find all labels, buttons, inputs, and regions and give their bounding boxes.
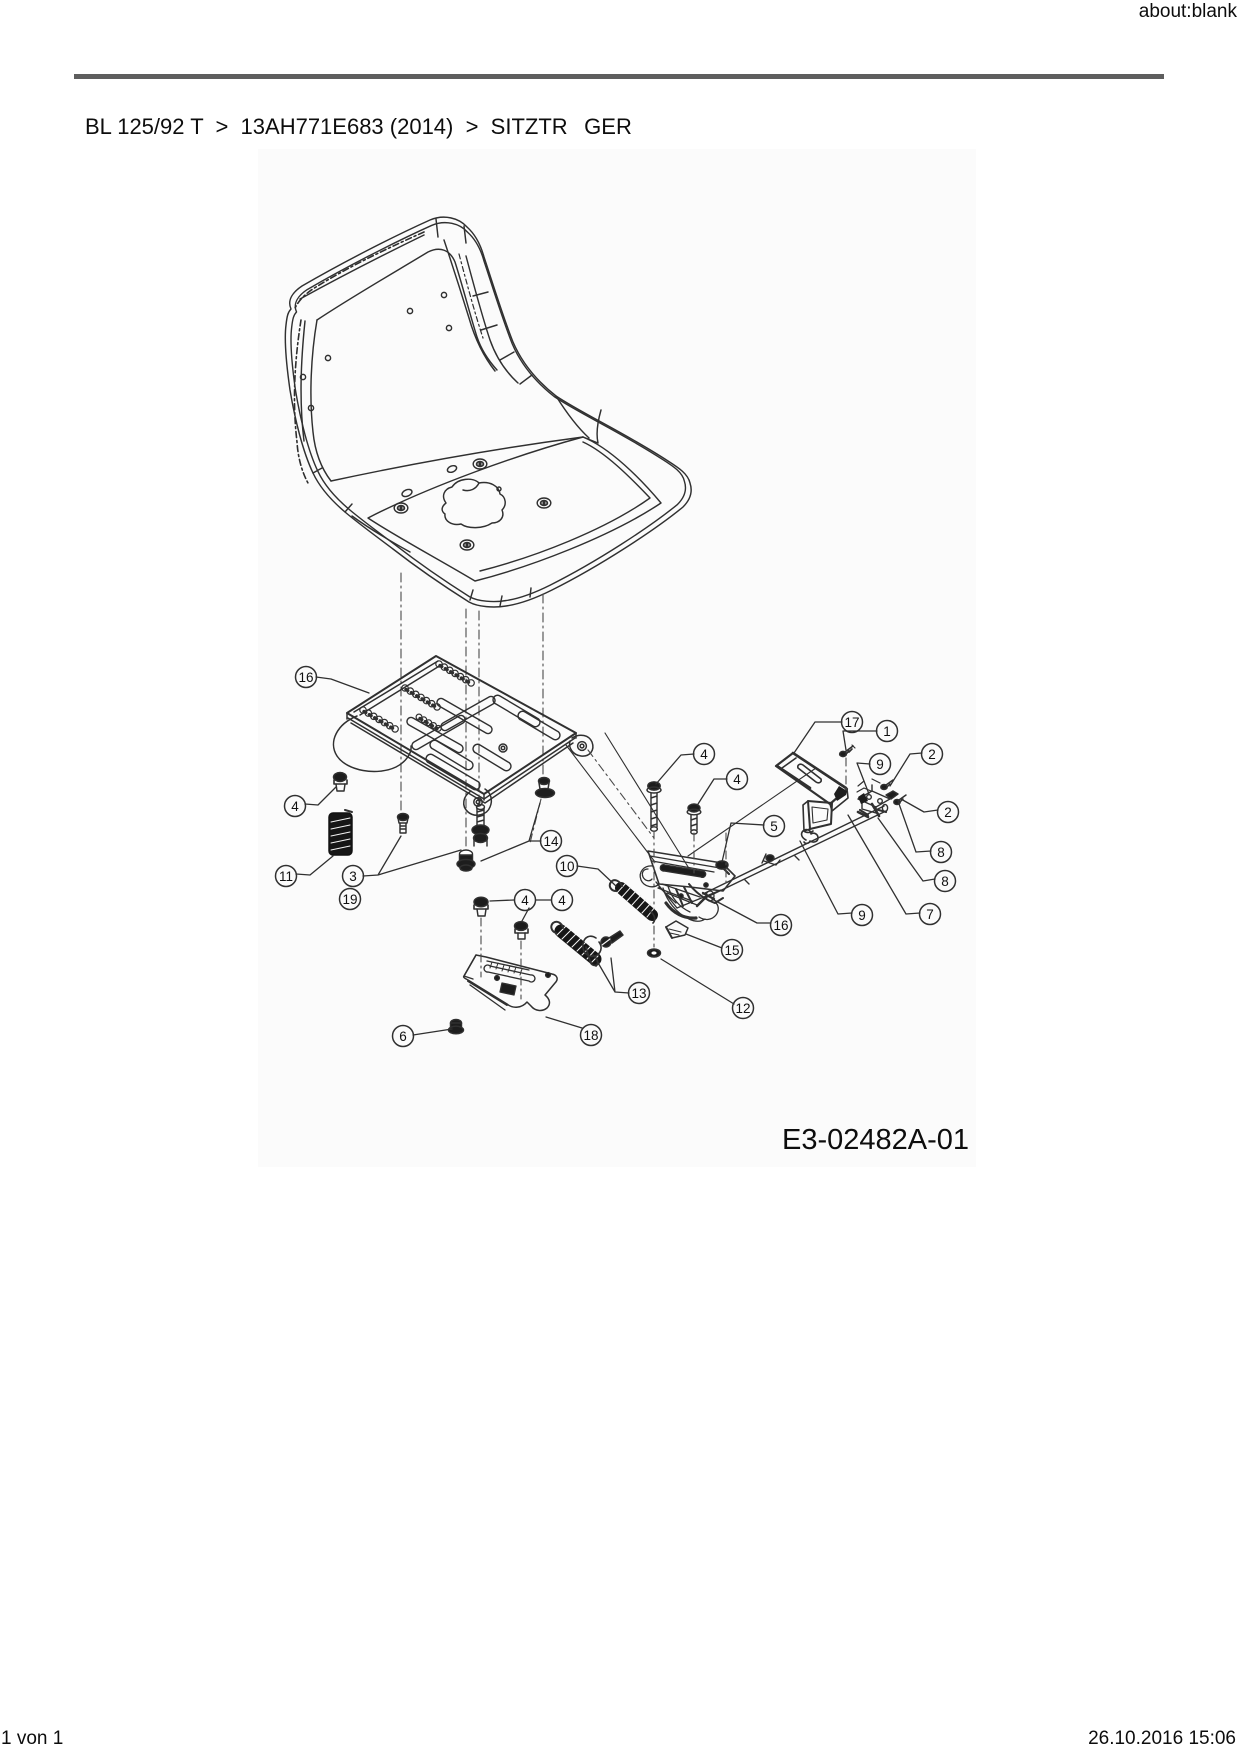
svg-text:4: 4 xyxy=(733,772,741,787)
svg-text:11: 11 xyxy=(279,869,293,884)
svg-text:6: 6 xyxy=(399,1029,407,1044)
svg-text:1: 1 xyxy=(883,724,891,739)
svg-text:3: 3 xyxy=(349,869,357,884)
svg-text:4: 4 xyxy=(521,893,529,908)
svg-text:16: 16 xyxy=(298,670,313,685)
svg-text:18: 18 xyxy=(583,1028,598,1043)
svg-text:14: 14 xyxy=(543,834,559,849)
svg-text:2: 2 xyxy=(928,747,936,762)
svg-text:4: 4 xyxy=(291,799,299,814)
svg-text:8: 8 xyxy=(941,874,949,889)
svg-text:16: 16 xyxy=(773,918,788,933)
svg-text:5: 5 xyxy=(770,819,778,834)
svg-text:13: 13 xyxy=(631,986,646,1001)
svg-text:10: 10 xyxy=(559,859,574,874)
svg-text:15: 15 xyxy=(724,943,739,958)
svg-text:7: 7 xyxy=(926,907,934,922)
svg-text:9: 9 xyxy=(876,757,884,772)
svg-text:4: 4 xyxy=(700,747,708,762)
svg-text:9: 9 xyxy=(858,908,866,923)
svg-text:2: 2 xyxy=(944,805,952,820)
svg-text:4: 4 xyxy=(558,893,566,908)
svg-text:8: 8 xyxy=(937,845,945,860)
svg-text:12: 12 xyxy=(735,1001,750,1016)
svg-text:19: 19 xyxy=(342,892,357,907)
svg-text:17: 17 xyxy=(844,715,859,730)
